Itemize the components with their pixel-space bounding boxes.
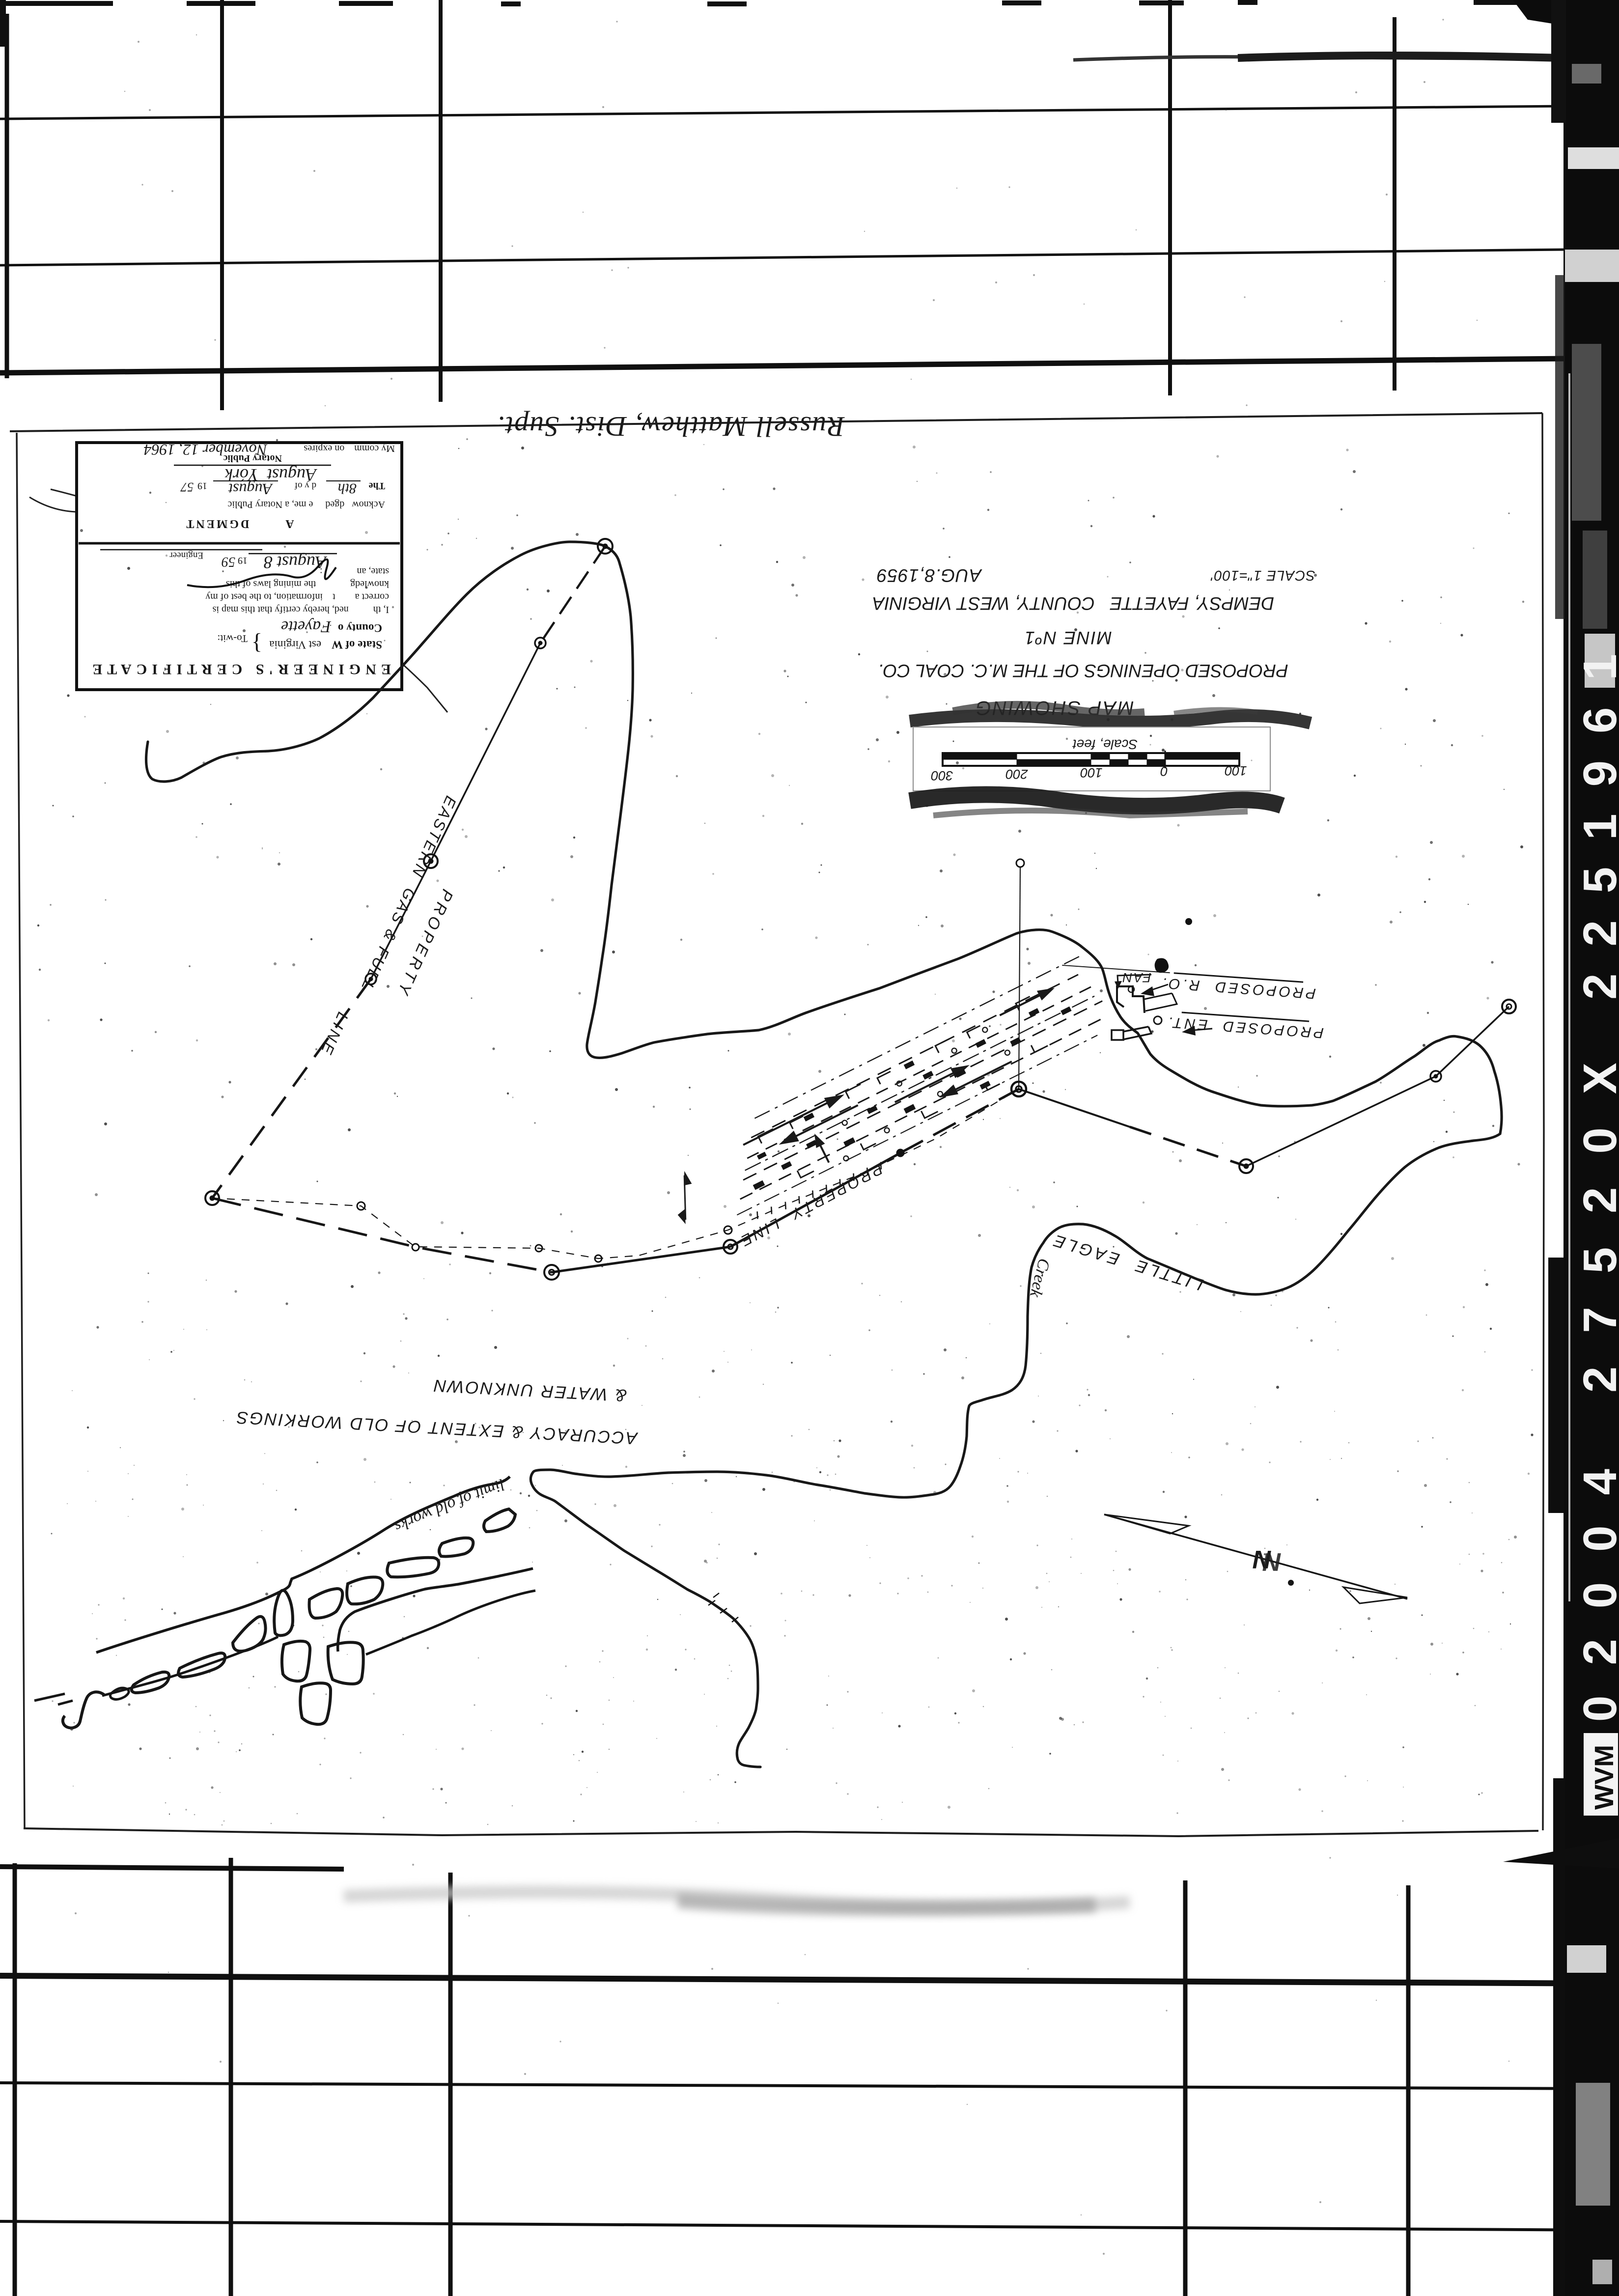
svg-text:My comm on expires: My comm on expires bbox=[304, 443, 395, 454]
svg-text:19: 19 bbox=[238, 555, 248, 566]
svg-text:02004: 02004 bbox=[1574, 1438, 1619, 1722]
svg-text:The: The bbox=[369, 480, 385, 491]
svg-text:Engineer: Engineer bbox=[169, 550, 203, 560]
svg-text:August 8: August 8 bbox=[264, 553, 327, 572]
svg-text:Russell Matthew, Dist. Supt.: Russell Matthew, Dist. Supt. bbox=[496, 411, 845, 443]
svg-text:I, th ned, hereby cer: I, th ned, hereby certify that this map … bbox=[212, 604, 389, 615]
svg-text:Scale, feet: Scale, feet bbox=[1072, 737, 1138, 752]
svg-text:State of W: State of W bbox=[332, 639, 382, 651]
svg-text:N: N bbox=[1262, 1547, 1282, 1576]
svg-text:WVM: WVM bbox=[1590, 1745, 1619, 1810]
svg-text:Acknow dged e me, a Nota: Acknow dged e me, a Notary Public bbox=[227, 499, 385, 510]
svg-text:57: 57 bbox=[180, 480, 194, 494]
svg-text:correct a t informat: correct a t information, to the best of … bbox=[205, 591, 389, 602]
svg-text:2251961: 2251961 bbox=[1574, 627, 1619, 1000]
svg-text:SCALE 1"=100': SCALE 1"=100' bbox=[1210, 567, 1315, 583]
svg-text:ENGINEER'S CERTIFICATE: ENGINEER'S CERTIFICATE bbox=[87, 661, 391, 677]
svg-text:A DGMENT: A DGMENT bbox=[184, 517, 294, 530]
svg-text:}: } bbox=[251, 631, 262, 656]
svg-text:August Yórk: August Yórk bbox=[224, 465, 317, 485]
svg-text:est Virginia: est Virginia bbox=[269, 639, 321, 651]
svg-text:0: 0 bbox=[1160, 764, 1168, 779]
svg-text:8th: 8th bbox=[338, 480, 357, 497]
svg-text:100: 100 bbox=[1080, 765, 1102, 780]
svg-text:MINE Nº1: MINE Nº1 bbox=[1024, 628, 1112, 648]
svg-text:59: 59 bbox=[222, 554, 235, 569]
svg-text:knowledg the mini: knowledg the mining laws of this bbox=[226, 579, 389, 589]
svg-text:100: 100 bbox=[1225, 763, 1247, 778]
svg-text:FAN: FAN bbox=[1121, 970, 1151, 985]
svg-text:19: 19 bbox=[197, 480, 207, 491]
svg-text:275: 275 bbox=[1574, 1214, 1619, 1393]
svg-text:AUG.8,1959: AUG.8,1959 bbox=[876, 565, 982, 586]
svg-text:20X: 20X bbox=[1574, 1029, 1619, 1213]
svg-text:Fayette: Fayette bbox=[281, 617, 332, 636]
svg-text:DEMPSY, FAYETTE COUNTY, WEST: DEMPSY, FAYETTE COUNTY, WEST VIRGINIA bbox=[872, 593, 1274, 614]
svg-text:To-wit:: To-wit: bbox=[217, 633, 248, 644]
svg-text:200: 200 bbox=[1005, 767, 1028, 782]
svg-text:County o: County o bbox=[338, 622, 382, 634]
svg-text:300: 300 bbox=[931, 768, 953, 783]
svg-text:November 12, 1964: November 12, 1964 bbox=[143, 441, 268, 459]
svg-text:PROPOSED OPENINGS OF THE M.C.: PROPOSED OPENINGS OF THE M.C. COAL CO. bbox=[878, 661, 1288, 681]
